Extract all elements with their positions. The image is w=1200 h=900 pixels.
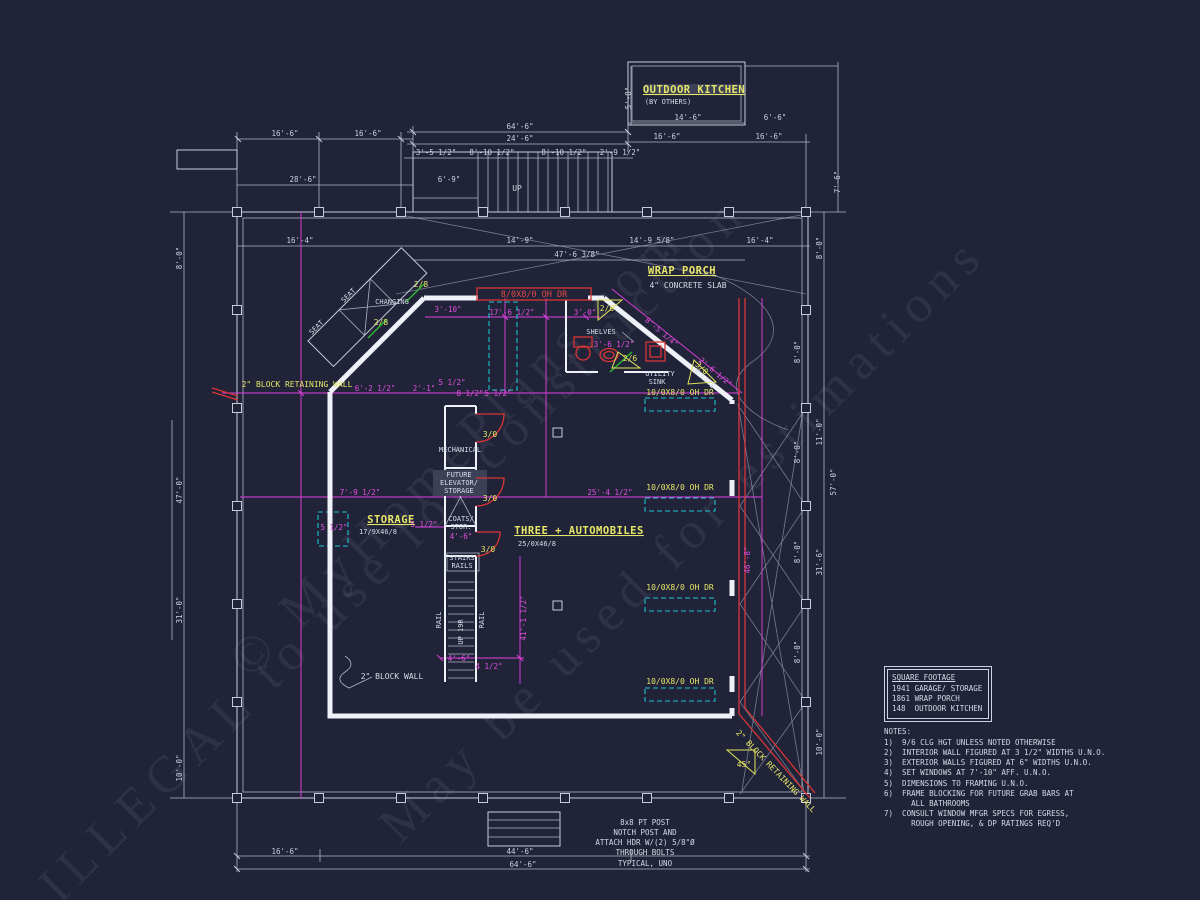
storage-size-label: 17/9X46/8 [359, 528, 397, 536]
dimension-label: 5 1/2" [438, 378, 465, 387]
stoop [177, 150, 237, 169]
dimension-label: 64'-6" [509, 860, 536, 869]
seat-label: SEAT [340, 286, 358, 304]
door-size-label: 2/6 [623, 354, 638, 363]
overhead-door-label: 10/0X8/0 OH DR [646, 483, 714, 492]
dimension-label: 7'-9 1/2" [340, 488, 381, 497]
dimension-label: 4'-6" [448, 654, 471, 663]
dimension-label: 16'-6" [653, 132, 680, 141]
concrete-slab-label: 4" CONCRETE SLAB [649, 281, 726, 290]
dimension-label: 16'-4" [746, 236, 773, 245]
dimension-label: 47'-0" [175, 476, 184, 503]
dimension-label: 14'-9" [506, 236, 533, 245]
dimension-label: 3'-0" [574, 308, 597, 317]
floorplan-page: © MyHomePlans.com May be used for estima… [0, 0, 1200, 900]
door-size-label: 2/6 [600, 304, 615, 313]
dimension-label: 28'-6" [289, 175, 316, 184]
dimension-label: 3'-10" [434, 305, 461, 314]
dimension-label: 14'-9 5/8" [629, 236, 674, 245]
utility-sink-label: UTILITY [645, 370, 675, 378]
overhead-door-label: 10/0X8/0 OH DR [646, 677, 714, 686]
door-size-label: 3/0 [483, 430, 498, 439]
dimension-label: 16'-6" [354, 129, 381, 138]
notes-block: NOTES: 1) 9/6 CLG HGT UNLESS NOTED OTHER… [884, 727, 1105, 829]
stair-up-label: UP [512, 184, 522, 193]
dimension-label: 64'-6" [506, 122, 533, 131]
dimension-label: 8'-10 1/2" [541, 148, 586, 157]
dimension-label: 8'-0" [815, 237, 824, 260]
shelves-label: SHELVES [586, 328, 616, 336]
dimension-label: 16'-6" [271, 129, 298, 138]
future-elevator-label: FUTURE [446, 471, 471, 479]
seat-label: SEAT [308, 318, 326, 336]
dimension-label: 5'-0" [624, 87, 633, 110]
dimension-label: 5 1/2" [410, 520, 437, 529]
dimension-label: 6'-6" [764, 113, 787, 122]
by-others-label: (BY OTHERS) [645, 98, 691, 106]
dimension-label: 2'-9 1/2" [600, 148, 641, 157]
dimension-label: 6'-2 1/2" [355, 384, 396, 393]
exterior-stair-bottom [488, 812, 560, 846]
notes-lines: 1) 9/6 CLG HGT UNLESS NOTED OTHERWISE 2)… [884, 738, 1105, 829]
door-size-label: 2/8 [374, 318, 389, 327]
changing-label: CHANGING [375, 298, 409, 306]
dimension-label: 57'-0" [829, 468, 838, 495]
wrap-porch-label: WRAP PORCH [648, 265, 716, 277]
dimension-label: 24'-6" [506, 134, 533, 143]
dimension-label: 8 1/2" [456, 389, 483, 398]
overhead-door-label: 10/0X8/0 OH DR [646, 388, 714, 397]
dimension-label: 7'-6" [833, 171, 842, 194]
dimension-label: 10'-0" [175, 754, 184, 781]
door-size-label: 3/0 [483, 494, 498, 503]
door-size-label: 3/0 [481, 545, 496, 554]
dimension-label: 6'-9" [438, 175, 461, 184]
utility-sink-icon [650, 346, 661, 357]
dimension-label: 10'-0" [815, 728, 824, 755]
stair-direction-label: UP 19R [457, 619, 465, 645]
coats-storage-label: COATS/ [448, 515, 473, 523]
dimension-label: 11'-0" [815, 418, 824, 445]
garage-size-label: 25/0X46/8 [518, 540, 556, 548]
dimension-label: 5 1/2" [320, 523, 347, 532]
utility-sink-label: SINK [649, 378, 667, 386]
dimension-label: 31'-0" [175, 596, 184, 623]
outdoor-kitchen-label: OUTDOOR KITCHEN [643, 84, 745, 96]
dimension-label: 8'-0" [793, 441, 802, 464]
door-size-label: 2/8 [414, 280, 429, 289]
future-elevator-label: ELEVATOR/ [440, 479, 478, 487]
block-wall-label: 2" BLOCK WALL [361, 672, 424, 681]
three-automobiles-label: THREE + AUTOMOBILES [514, 525, 644, 537]
mechanical-label: MECHANICAL [439, 446, 481, 454]
dimension-label: 3'-6 1/2" [594, 340, 635, 349]
dimension-label: 16'-6" [755, 132, 782, 141]
dimension-label: 47'-6 3/8" [554, 250, 599, 259]
dimension-label: 44'-6" [506, 847, 533, 856]
overhead-door-label: 10/0X8/0 OH DR [646, 583, 714, 592]
dimension-label: 14'-6" [674, 113, 701, 122]
post-note-lines: 8x8 PT POST NOTCH POST AND ATTACH HDR W/… [570, 818, 720, 869]
dimension-label: 17'-6 1/2" [489, 308, 534, 317]
overhead-door-label: 8/0X8/0 OH DR [501, 290, 568, 300]
rail-label: RAIL [435, 612, 443, 629]
dimension-label: 16'-6" [271, 847, 298, 856]
post-note: 8x8 PT POST NOTCH POST AND ATTACH HDR W/… [570, 818, 720, 869]
square-footage-title: SQUARE FOOTAGE [892, 673, 982, 682]
dimension-label: 5 1/2" [484, 389, 511, 398]
retaining-wall [212, 388, 238, 400]
rail-label: RAIL [478, 612, 486, 629]
dimension-label: 46'-8" [743, 546, 752, 573]
dimension-label: 16'-4" [286, 236, 313, 245]
dimension-label: 41'-1 1/2" [519, 595, 528, 640]
angle-label: 45° [737, 760, 751, 769]
dimension-label: 4'-6" [450, 532, 473, 541]
dimension-label: 8'-0" [793, 341, 802, 364]
stairs-label: RAILS [451, 562, 472, 570]
dimension-label: 8'-10 1/2" [469, 148, 514, 157]
dimension-label: 2'-1" [413, 384, 436, 393]
dimension-label: 8'-0" [175, 247, 184, 270]
block-retaining-wall-label: 2" BLOCK RETAINING WALL [734, 728, 818, 814]
dimension-label: 8'-0" [793, 641, 802, 664]
dimension-label: 31'-6" [815, 548, 824, 575]
dimension-label: 8'-0" [793, 541, 802, 564]
block-retaining-wall-label: 2" BLOCK RETAINING WALL [242, 380, 353, 389]
dimension-label: 25'-4 1/2" [587, 488, 632, 497]
future-elevator-label: STORAGE [444, 487, 474, 495]
notes-title: NOTES: [884, 727, 1105, 736]
dimension-label: 3'-5 1/2" [416, 148, 457, 157]
storage-label: STORAGE [367, 514, 415, 526]
square-footage-rows: 1941 GARAGE/ STORAGE 1861 WRAP PORCH 148… [892, 684, 982, 714]
stairs-label: STAIRS [449, 554, 474, 562]
square-footage-table: SQUARE FOOTAGE 1941 GARAGE/ STORAGE 1861… [884, 666, 992, 722]
coats-storage-label: STOR. [450, 523, 471, 531]
dimension-label: 4 1/2" [475, 662, 502, 671]
